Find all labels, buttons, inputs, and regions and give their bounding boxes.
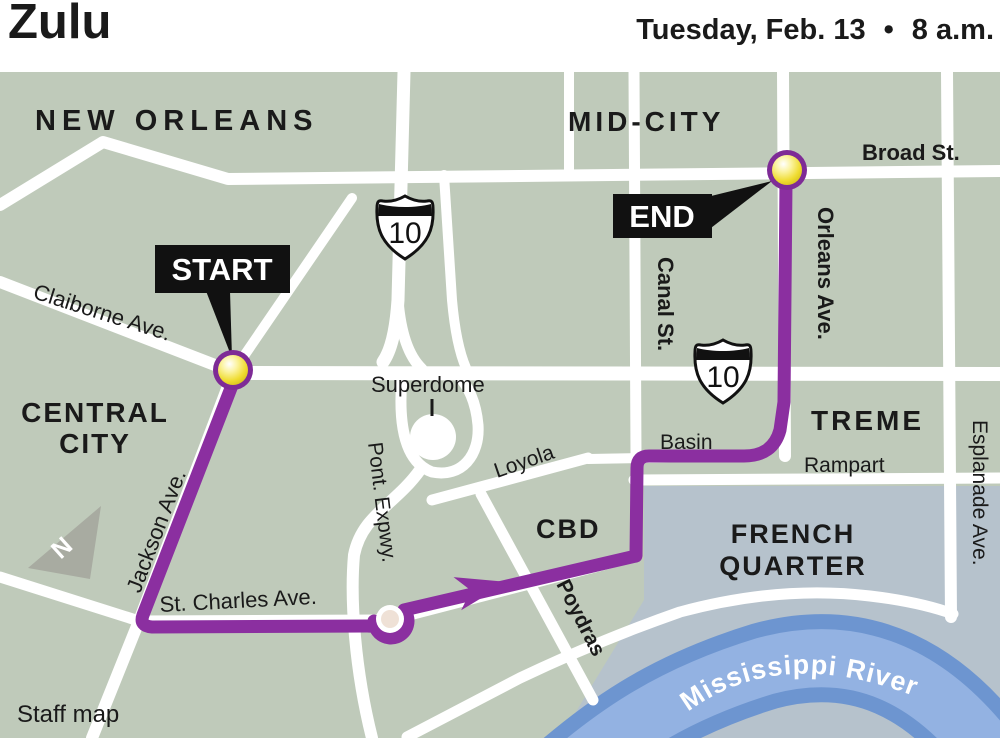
superdome-circle [410,414,456,460]
label-new-orleans: NEW ORLEANS [35,105,319,137]
event-dateline: Tuesday, Feb. 13 • 8 a.m. [636,14,994,47]
end-ball-icon [772,155,802,185]
label-basin: Basin [660,431,713,454]
label-canal-st: Canal St. [653,257,678,351]
label-rampart: Rampart [804,454,885,477]
map-header: Zulu Tuesday, Feb. 13 • 8 a.m. [0,0,1000,72]
event-date: Tuesday, Feb. 13 [636,14,865,47]
lee-circle [376,605,404,633]
label-french-quarter-2: QUARTER [719,551,867,581]
label-mid-city: MID-CITY [568,106,724,137]
label-central-city-1: CENTRAL [21,397,169,428]
label-esplanade-ave: Esplanade Ave. [968,420,991,566]
label-central-city-2: CITY [59,428,131,459]
shield-number: 10 [388,217,421,250]
label-treme: TREME [811,405,924,436]
map-canvas: START END 10 10 N NEW ORLEANS MID-CITY C… [0,72,1000,738]
route-map: START END 10 10 N NEW ORLEANS MID-CITY C… [0,72,1000,738]
label-cbd: CBD [536,514,601,544]
label-french-quarter-1: FRENCH [731,519,856,549]
start-label: START [171,252,272,287]
label-orleans-ave: Orleans Ave. [813,207,838,340]
label-broad-st: Broad St. [862,140,960,165]
event-time: 8 a.m. [912,14,994,47]
end-label: END [629,199,694,234]
label-superdome: Superdome [371,372,485,397]
start-ball-icon [218,355,248,385]
map-credit: Staff map [17,701,119,728]
claiborne-i10-corridor-road [233,373,1000,374]
bullet-separator: • [884,14,894,47]
shield-number: 10 [706,361,739,394]
page-title: Zulu [8,0,111,50]
